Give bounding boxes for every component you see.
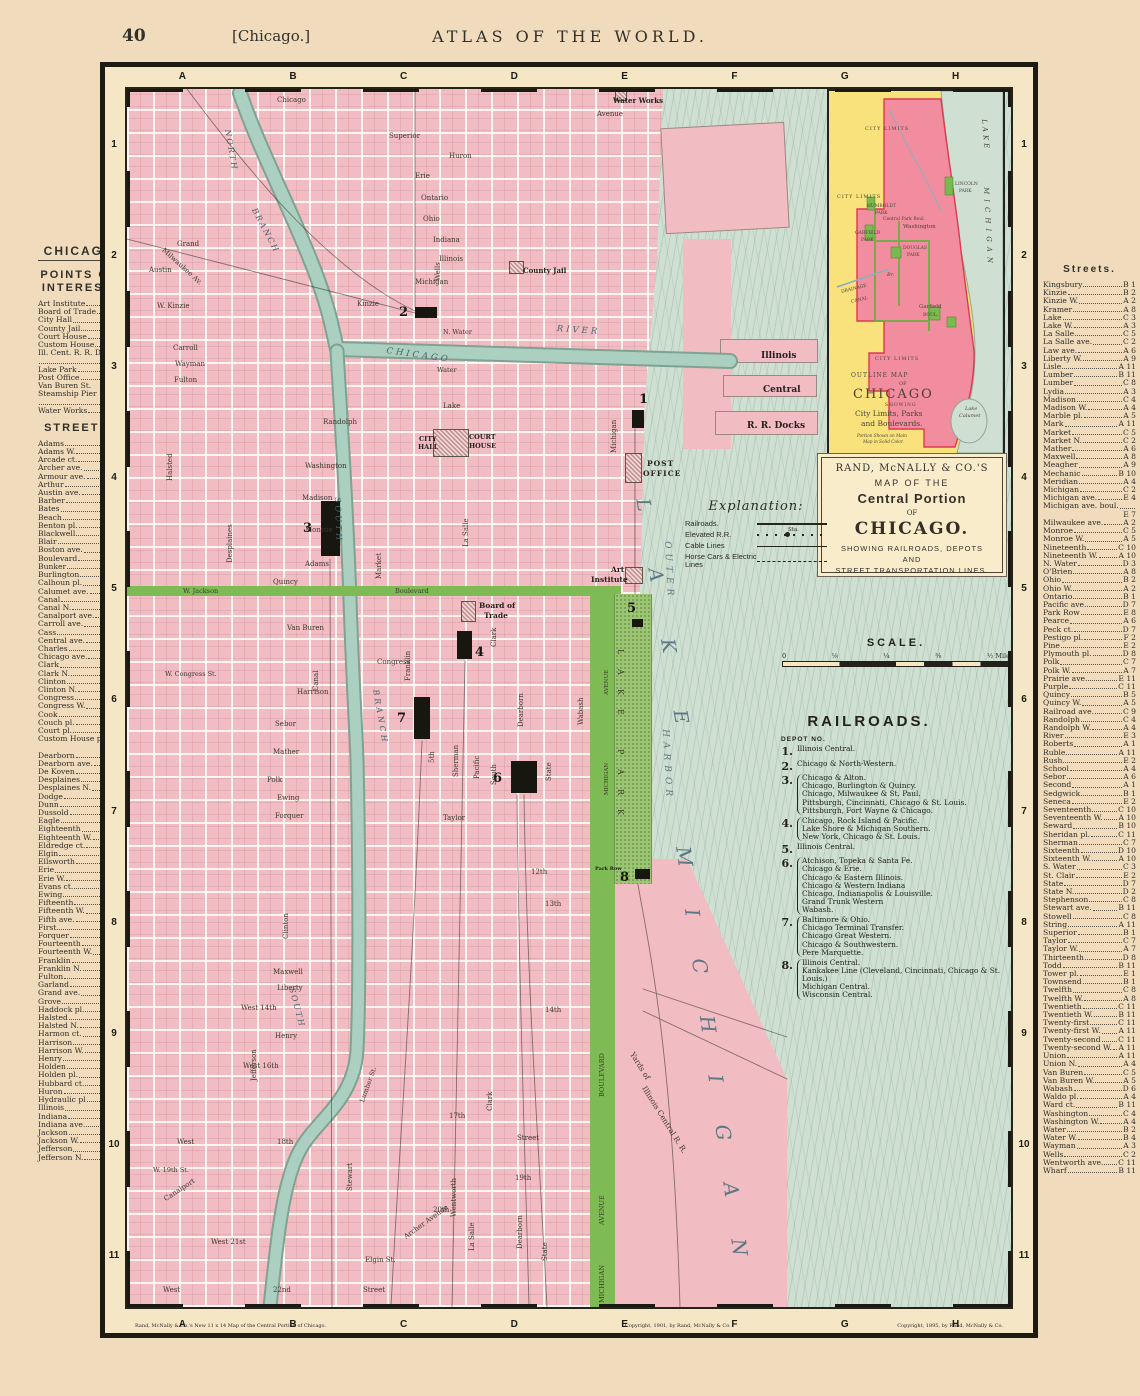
lake-park — [614, 594, 652, 884]
map-label: Chicago — [277, 97, 306, 104]
map-label: Polk — [267, 777, 282, 784]
grid-label: 6 — [1021, 694, 1027, 705]
map-label: HOUSE — [469, 443, 496, 450]
map-label: W. Congress St. — [165, 671, 217, 678]
cartouche-showing: SHOWING RAILROADS, DEPOTS — [822, 544, 1002, 553]
map-label: L — [616, 649, 624, 654]
map-label: Avenue — [597, 111, 623, 118]
cartouche-map-of-the: MAP OF THE — [822, 478, 1002, 488]
railroad-depot-entry: 5.Illinois Central. — [775, 843, 1013, 856]
map-label: Kinzie — [357, 301, 379, 308]
map-canvas: CITY LIMITSCITY LIMITSCITY LIMITSLINCOLN… — [125, 87, 1013, 1309]
map-label: PARK — [959, 190, 972, 195]
map-label: CITY LIMITS — [837, 195, 881, 200]
grid-label: 6 — [111, 694, 117, 705]
map-label: Huron — [449, 153, 472, 160]
grid-label: 4 — [111, 472, 117, 483]
depot-6 — [511, 761, 537, 793]
cartouche-central-portion: Central Portion — [822, 491, 1002, 506]
map-label: City Limits, Parks — [855, 410, 922, 418]
map-label: W. Jackson — [183, 588, 218, 595]
cartouche-publisher: RAND, McNALLY & CO.'S — [822, 463, 1002, 474]
grid-label: F — [731, 1319, 737, 1330]
map-label: Garfield — [919, 305, 942, 311]
map-label: Central — [763, 386, 801, 395]
border-ticks-top — [127, 89, 1011, 92]
index-entry: WharfB 11 — [1043, 1167, 1136, 1175]
map-label: OFFICE — [643, 470, 681, 478]
map-label: Ontario — [421, 195, 448, 202]
grid-label: 3 — [111, 361, 117, 372]
railroad-depot-entry: 6.Atchison, Topeka & Santa Fe.Chicago & … — [775, 857, 1013, 914]
map-label: County Jail — [523, 267, 566, 274]
scale-bar — [782, 661, 1010, 667]
railroad-name: Illinois Central. — [797, 745, 855, 753]
map-label: Washington — [305, 463, 347, 470]
map-label: HUMBOLDT — [867, 205, 896, 210]
map-label: Market — [376, 553, 383, 579]
depot-7 — [414, 697, 430, 739]
map-label: Henry — [275, 1033, 297, 1040]
explanation-row: Horse Cars & Electric Lines — [685, 553, 827, 569]
grid-label: C — [400, 71, 407, 82]
map-label: West 14th — [241, 1005, 277, 1012]
map-label: Clinton — [283, 913, 290, 939]
map-label: Franklin — [405, 651, 412, 681]
right-index: Streets. KingsburyB 1KinzieB 2Kinzie W.A… — [1043, 256, 1136, 1175]
grid-label: 8 — [1021, 917, 1027, 928]
grid-label: 2 — [1021, 250, 1027, 261]
map-label: GARFIELD — [855, 232, 880, 237]
map-label: Austin — [149, 267, 172, 274]
cartouche-street-lines: STREET TRANSPORTATION LINES. — [822, 566, 1002, 575]
explanation-row: Cable Lines — [685, 542, 827, 550]
map-label: Madison — [302, 495, 332, 502]
map-label: CITY LIMITS — [875, 357, 919, 362]
landmark-building — [433, 429, 469, 457]
map-label: La Salle — [469, 1222, 476, 1251]
map-label: Clark — [491, 628, 498, 647]
map-label: A — [616, 769, 624, 775]
map-label: R. R. Docks — [747, 422, 805, 431]
landmark-building — [461, 601, 476, 622]
grid-label: 11 — [1019, 1250, 1030, 1261]
map-label: Central Park Boul. — [883, 218, 925, 223]
map-label: La Salle — [463, 518, 470, 547]
map-label: Lake — [965, 407, 977, 412]
grid-letters-top: ABCDEFGH — [127, 68, 1011, 84]
map-label: Art — [611, 566, 624, 574]
grid-label: 10 — [108, 1139, 119, 1150]
scale: SCALE. 0⅛¼⅜½ Mile — [782, 637, 1010, 667]
grid-label: 3 — [1021, 361, 1027, 372]
map-label: OUTLINE MAP — [851, 373, 908, 379]
map-label: Erie — [415, 173, 430, 180]
map-label: Sherman — [453, 745, 460, 777]
map-label: West 21st — [211, 1239, 246, 1246]
border-ticks-bottom — [127, 1304, 1011, 1307]
imprint-center: Copyright, 1901, by Rand, McNally & Co. — [625, 1323, 731, 1329]
grid-label: 1 — [111, 139, 117, 150]
railroad-name: Kankakee Line (Cleveland, Cincinnati, Ch… — [802, 967, 1013, 983]
map-label: Illinois — [761, 352, 797, 361]
explanation-row: Elevated R.R.Sta. — [685, 531, 827, 539]
border-ticks-left — [127, 89, 130, 1307]
map-label: 13th — [545, 901, 561, 908]
map-label: AVENUE — [605, 670, 611, 695]
grid-label: ¼ — [883, 652, 889, 660]
grid-label: F — [731, 71, 737, 82]
map-label: Trade — [484, 612, 508, 620]
index-entry: Michigan ave. boul.E 7 — [1043, 502, 1136, 518]
map-label: Mather — [273, 749, 299, 756]
map-label: Lake — [443, 403, 460, 410]
map-label: SOUTH — [333, 497, 343, 543]
map-label: CITY LIMITS — [865, 127, 909, 132]
depot-2 — [415, 307, 437, 318]
map-label: Park Row — [595, 867, 622, 872]
map-label: Portion Shown on Main — [857, 434, 907, 438]
grid-label: 9 — [111, 1028, 117, 1039]
map-label: West — [177, 1139, 194, 1146]
map-label: E — [616, 709, 624, 715]
map-label: 18th — [277, 1139, 293, 1146]
map-label: PARK — [875, 212, 888, 217]
explanation-title: Explanation: — [685, 499, 827, 514]
map-label: PARK — [907, 254, 920, 259]
map-label: Pacific — [474, 756, 481, 779]
grid-label: 5 — [1021, 583, 1027, 594]
railroad-name: Pittsburgh, Fort Wayne & Chicago. — [802, 807, 967, 815]
map-label: Forquer — [275, 813, 304, 820]
grid-label: A — [179, 71, 186, 82]
map-label: Clark — [487, 1092, 494, 1111]
depot-number-5: 5 — [627, 601, 636, 616]
railroad-name: Pere Marquette. — [802, 949, 904, 957]
map-label: Monroe — [305, 527, 333, 534]
railroad-name: New York, Chicago & St. Louis. — [802, 833, 930, 841]
explanation-legend: Explanation: Railroads.Elevated R.R.Sta.… — [685, 499, 827, 572]
grid-label: 10 — [1018, 1139, 1029, 1150]
border-ticks-right — [1008, 89, 1011, 1307]
map-label: PARK — [861, 239, 874, 244]
map-label: 19th — [515, 1175, 531, 1182]
map-label: Indiana — [433, 237, 460, 244]
grid-label: B — [289, 71, 296, 82]
map-label: 22nd — [273, 1287, 291, 1294]
depot-number-7: 7 — [397, 711, 406, 726]
map-label: LAKE — [980, 119, 990, 152]
map-label: SHOWING — [885, 404, 917, 409]
map-label: Ewing — [277, 795, 299, 802]
grid-label: 11 — [109, 1250, 120, 1261]
railroad-depot-entry: 3.Chicago & Alton.Chicago, Burlington & … — [775, 774, 1013, 815]
map-label: COURT — [469, 434, 496, 441]
map-label: Fulton — [174, 377, 197, 384]
map-label: W. 19th St. — [153, 1167, 189, 1174]
map-label: Grand — [177, 241, 199, 248]
map-label: HALL — [418, 444, 438, 451]
map-label: Michigan — [611, 420, 618, 453]
railroad-depot-entry: 8.Illinois Central.Kankakee Line (Clevel… — [775, 959, 1013, 1000]
grid-label: G — [841, 1319, 849, 1330]
depot-number-4: 4 — [475, 645, 484, 660]
grid-label: 5 — [111, 583, 117, 594]
map-label: Boulevard — [395, 588, 429, 595]
grid-label: 0 — [782, 652, 786, 660]
map-label: K — [616, 809, 624, 815]
cartouche-and: AND — [822, 555, 1002, 564]
grid-numbers-left: 1234567891011 — [106, 89, 122, 1311]
map-label: Halsted — [167, 453, 174, 481]
map-label: Water Works — [613, 97, 663, 104]
map-label: Street — [363, 1287, 385, 1294]
map-label: Desplaines — [227, 524, 234, 563]
map-label: POST — [647, 460, 674, 468]
map-label: Jefferson — [251, 1049, 258, 1081]
map-label: DOUGLAS — [903, 247, 927, 252]
title-cartouche: RAND, McNALLY & CO.'S MAP OF THE Central… — [821, 457, 1003, 573]
grid-label: 8 — [111, 917, 117, 928]
map-label: 5th — [429, 751, 436, 763]
grid-label: G — [841, 71, 849, 82]
map-label: Quincy — [273, 579, 298, 586]
map-label: Sebor — [275, 721, 296, 728]
map-label: BOULEVARD — [599, 1053, 606, 1097]
map-label: Michigan — [415, 279, 448, 286]
map-label: AVENUE — [599, 1195, 606, 1225]
depot-1 — [632, 410, 644, 428]
streets-heading-right: Streets. — [1043, 263, 1136, 276]
grid-label: 7 — [111, 806, 117, 817]
map-frame: ABCDEFGH ABCDEFGH 1234567891011 12345678… — [100, 62, 1038, 1338]
map-label: Street — [517, 1135, 539, 1142]
depot-8 — [635, 869, 650, 879]
map-label: Institute — [591, 576, 628, 584]
grid-label: 1 — [1021, 139, 1027, 150]
inset-outline-map: CITY LIMITSCITY LIMITSCITY LIMITSLINCOLN… — [827, 89, 1005, 455]
map-label: Superior — [389, 133, 420, 140]
map-label: Wentworth — [451, 1178, 458, 1217]
grid-label: 2 — [111, 250, 117, 261]
railroad-depot-entry: 2.Chicago & North-Western. — [775, 760, 1013, 773]
map-label: W. Kinzie — [157, 303, 189, 310]
explanation-rows: Railroads.Elevated R.R.Sta.Cable LinesHo… — [685, 520, 827, 569]
map-label: 17th — [449, 1113, 465, 1120]
map-label: CHICAGO — [853, 388, 934, 401]
map-label: Map in Solid Color. — [863, 440, 904, 444]
map-label: K — [616, 689, 624, 695]
landmark-building — [625, 453, 642, 483]
map-label: N. Water — [443, 329, 472, 336]
map-label: A — [616, 669, 624, 675]
map-label: Wells — [435, 262, 442, 281]
map-label: Board of — [479, 602, 515, 610]
grid-label: H — [952, 71, 959, 82]
map-label: South — [491, 764, 498, 785]
map-label: R — [616, 789, 624, 795]
imprint-left: Rand, McNally & Co.'s New 11 x 14 Map of… — [135, 1323, 326, 1329]
map-label: Calumet — [959, 414, 980, 419]
grid-numbers-right: 1234567891011 — [1016, 89, 1032, 1311]
grid-label: D — [511, 1319, 518, 1330]
map-label: Van Buren — [287, 625, 324, 632]
railroads-entries: 1.Illinois Central.2.Chicago & North-Wes… — [723, 745, 1013, 1000]
explanation-row: Railroads. — [685, 520, 827, 528]
railroad-depot-entry: 7.Baltimore & Ohio.Chicago Terminal Tran… — [775, 916, 1013, 957]
depot-number-8: 8 — [620, 870, 629, 885]
map-label: Adams — [305, 561, 329, 568]
map-label: Washington — [903, 225, 936, 231]
atlas-title: ATLAS OF THE WORLD. — [0, 27, 1140, 46]
map-label: Br. — [887, 273, 894, 278]
streets-list-k-w: KingsburyB 1KinzieB 2Kinzie W.A 2KramerA… — [1043, 281, 1136, 1175]
map-label: Maxwell — [273, 969, 303, 976]
page-header: 40 [Chicago.] ATLAS OF THE WORLD. — [0, 24, 1140, 54]
map-label: State — [542, 1242, 549, 1261]
map-label: Randolph — [323, 419, 357, 426]
railroad-depot-entry: 1.Illinois Central. — [775, 745, 1013, 758]
map-label: Wayman — [175, 361, 205, 368]
depot-5 — [632, 619, 643, 627]
map-label: CITY — [419, 436, 437, 443]
landmark-building — [509, 261, 524, 274]
grid-label: ⅛ — [832, 652, 838, 660]
depot-4 — [457, 631, 472, 659]
grid-label: C — [400, 1319, 407, 1330]
grid-label: ⅜ — [935, 652, 941, 660]
station-abbrev: Sta. — [788, 527, 799, 533]
map-label: State — [546, 762, 553, 781]
map-label: 14th — [545, 1007, 561, 1014]
map-label: Taylor — [443, 815, 465, 822]
map-label: LINCOLN — [955, 183, 978, 188]
railroad-name: Illinois Central. — [797, 843, 855, 851]
map-label: Water — [437, 367, 457, 374]
railroad-name: Wabash. — [802, 906, 933, 914]
railroad-name: Wisconsin Central. — [802, 991, 1013, 999]
railroads-depot-no: DEPOT NO. — [781, 736, 1013, 743]
map-label: Canal — [313, 671, 320, 691]
map-label: Ohio — [423, 216, 440, 223]
imprint-right: Copyright, 1895, by Rand, McNally & Co. — [897, 1323, 1003, 1329]
map-label: MICHIGAN — [599, 1265, 606, 1303]
map-label: Stewart — [347, 1163, 354, 1191]
map-label: MICHIGAN — [605, 763, 611, 795]
grid-label: E — [621, 71, 628, 82]
map-label: Carroll — [173, 345, 198, 352]
map-label: and Boulevards. — [861, 420, 923, 428]
depot-number-2: 2 — [399, 305, 408, 320]
cartouche-chicago: CHICAGO. — [822, 519, 1002, 539]
scale-labels: 0⅛¼⅜½ Mile — [782, 652, 1010, 660]
railroad-name: Chicago & North-Western. — [797, 760, 896, 768]
map-label: Dearborn — [517, 1215, 524, 1249]
depot-number-1: 1 — [639, 392, 648, 407]
map-label: West — [163, 1287, 180, 1294]
map-label: 12th — [531, 869, 547, 876]
railroads-title: RAILROADS. — [723, 713, 1013, 730]
grid-label: 4 — [1021, 472, 1027, 483]
map-label: Wabash — [578, 697, 585, 725]
map-label: BOUL. — [923, 314, 938, 319]
map-label: Dearborn — [518, 693, 525, 727]
grid-label: 9 — [1021, 1028, 1027, 1039]
grid-label: 7 — [1021, 806, 1027, 817]
map-label: West 16th — [243, 1063, 279, 1070]
scale-title: SCALE. — [782, 637, 1010, 649]
cartouche-of: OF — [822, 509, 1002, 517]
map-label: Illinois — [439, 256, 463, 263]
railroad-depot-entry: 4.Chicago, Rock Island & Pacific.Lake Sh… — [775, 817, 1013, 842]
map-label: P — [616, 749, 624, 754]
grid-label: D — [511, 71, 518, 82]
railroads-legend: RAILROADS. DEPOT NO. 1.Illinois Central.… — [723, 713, 1013, 1001]
map-label: Elgin St. — [365, 1257, 396, 1264]
grid-label: ½ Mile — [987, 652, 1010, 660]
